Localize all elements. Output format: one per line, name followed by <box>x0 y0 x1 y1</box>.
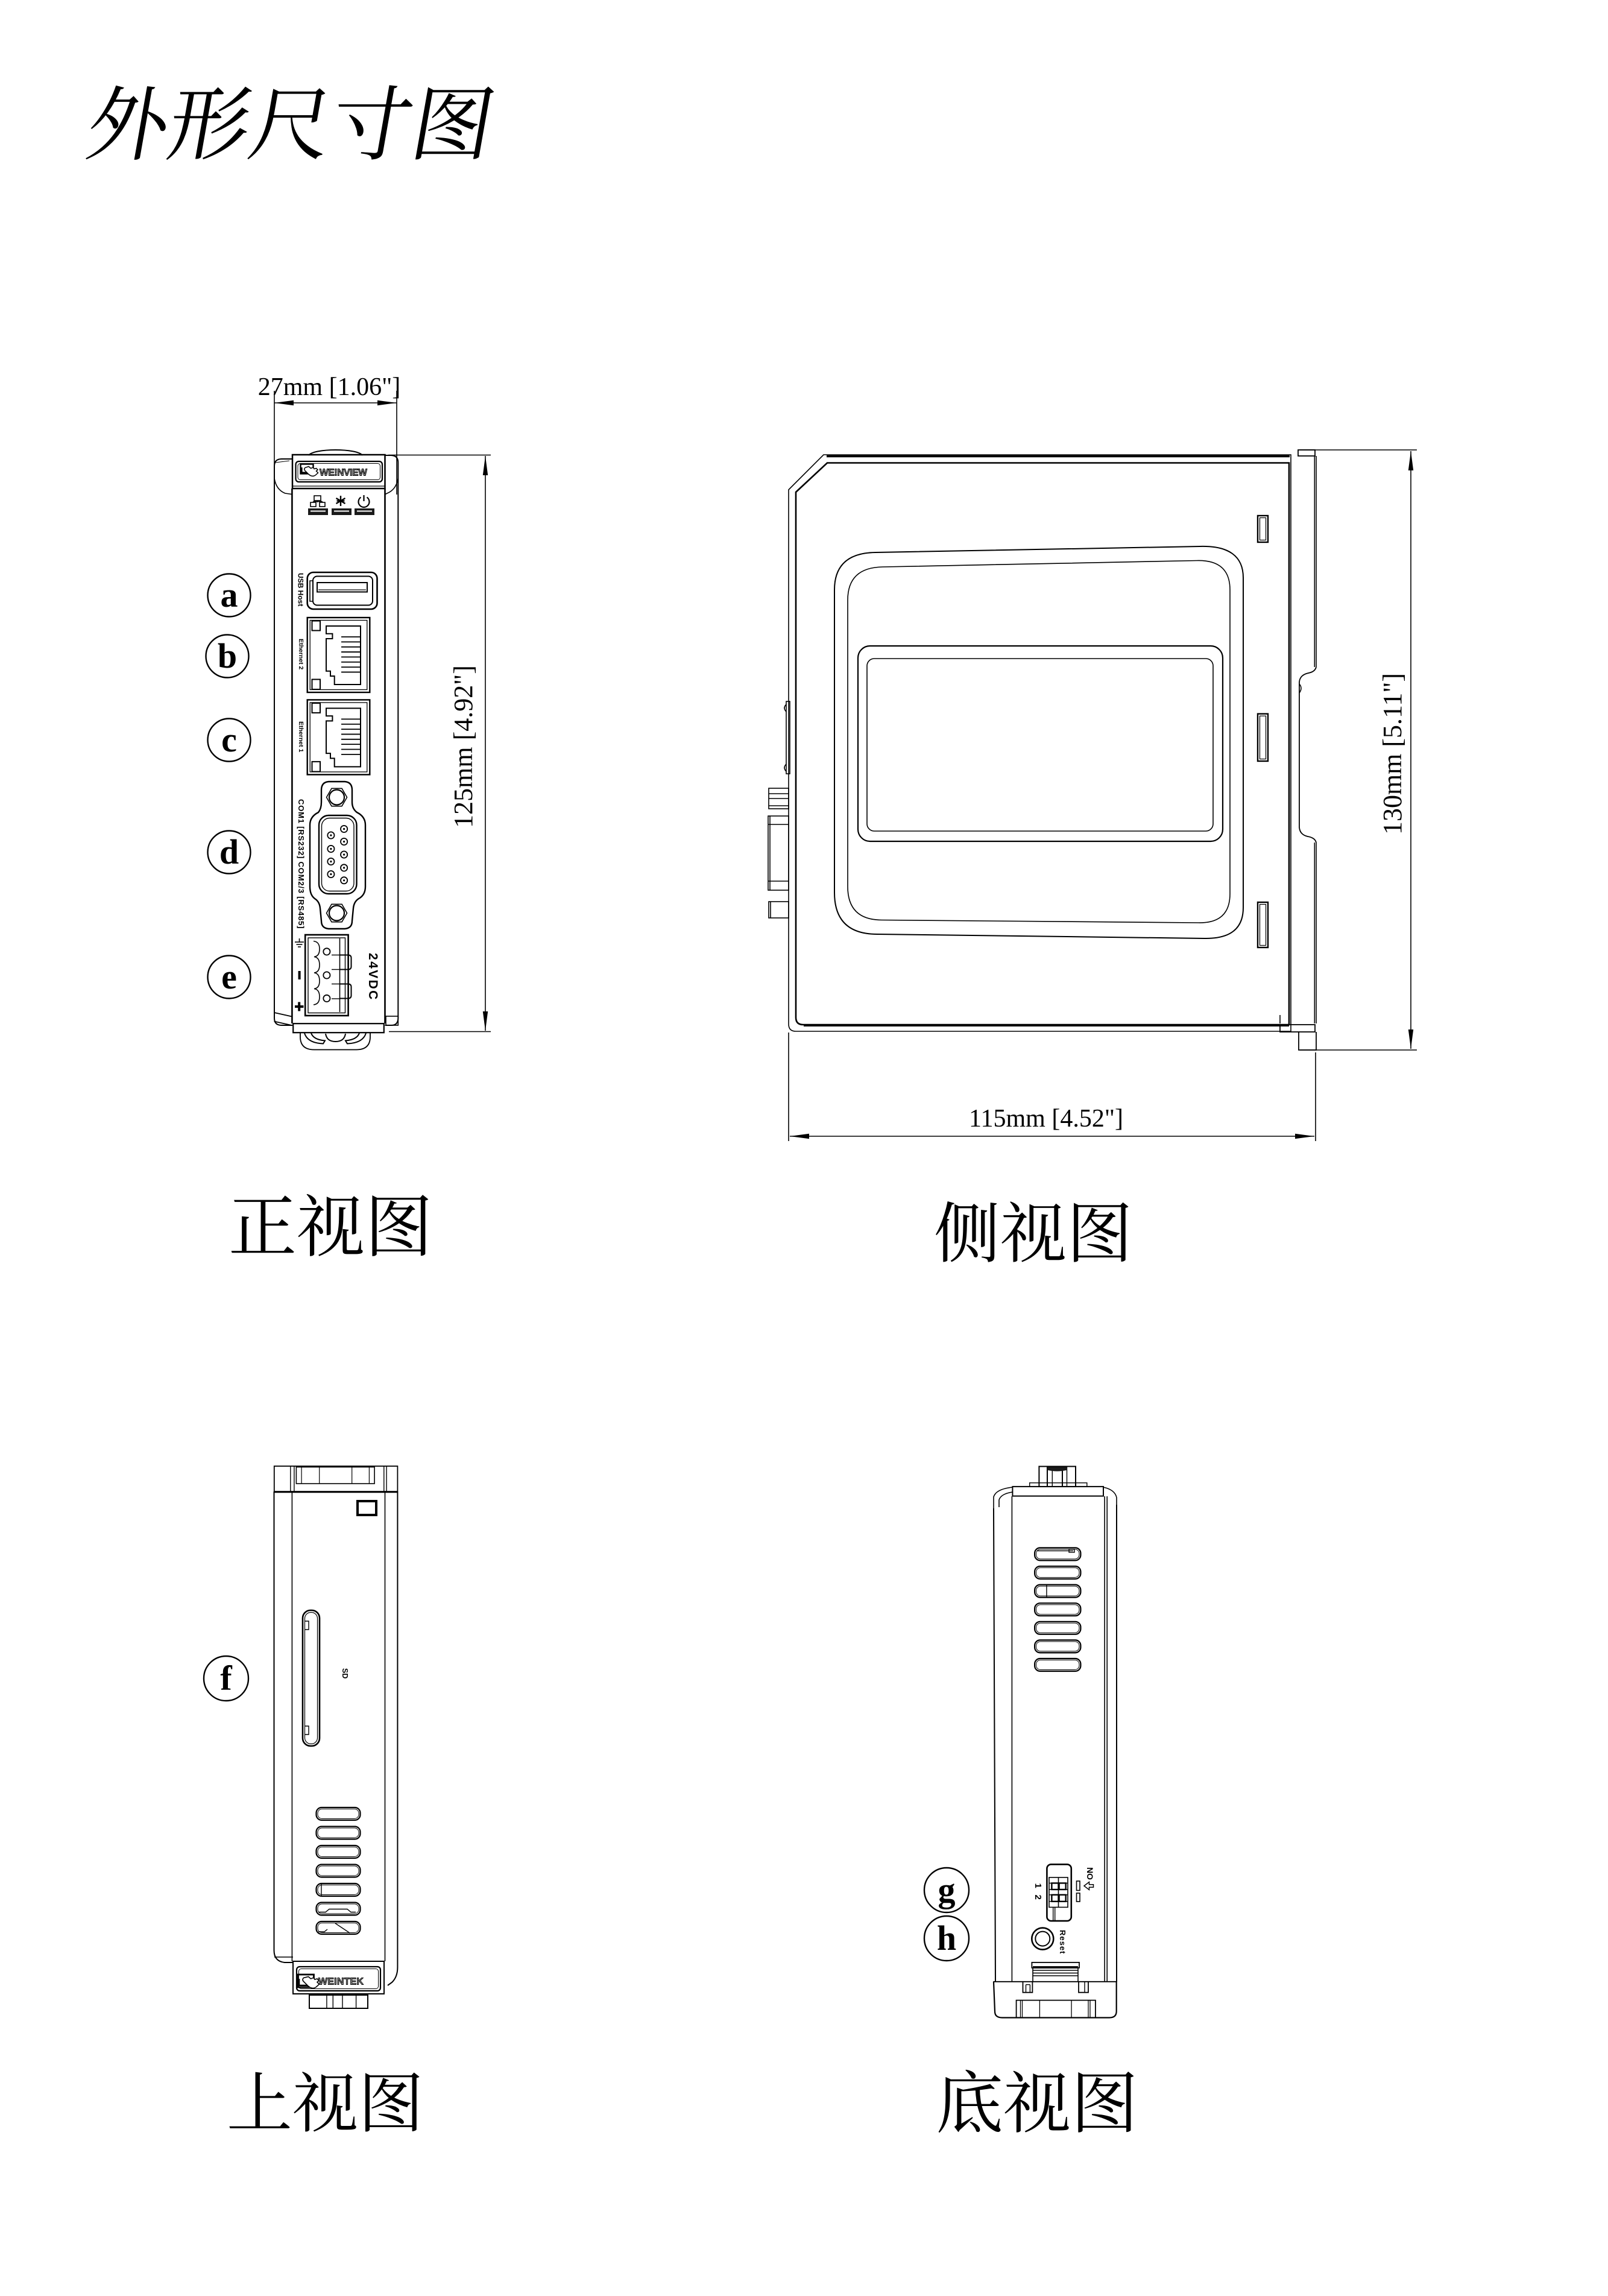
svg-text:e: e <box>221 957 237 996</box>
svg-text:130mm [5.11"]: 130mm [5.11"] <box>1378 673 1407 835</box>
svg-text:COM1 [RS232] COM2/3 [RS485]: COM1 [RS232] COM2/3 [RS485] <box>297 799 306 929</box>
svg-text:g: g <box>938 1870 956 1909</box>
svg-text:ON: ON <box>1085 1867 1094 1880</box>
svg-text:WE!NVIEW: WE!NVIEW <box>320 468 367 478</box>
svg-text:Reset: Reset <box>1058 1930 1067 1954</box>
svg-text:Ethernet 1: Ethernet 1 <box>297 721 304 753</box>
svg-text:c: c <box>221 720 237 759</box>
svg-text:1: 1 <box>1033 1883 1043 1888</box>
svg-text:2: 2 <box>1033 1895 1043 1900</box>
svg-text:d: d <box>219 832 239 871</box>
svg-text:WEINTEK: WEINTEK <box>318 1977 364 1987</box>
svg-text:115mm [4.52"]: 115mm [4.52"] <box>969 1105 1123 1133</box>
svg-text:SD: SD <box>341 1668 349 1678</box>
svg-text:f: f <box>220 1659 232 1698</box>
svg-text:USB Host: USB Host <box>297 573 305 606</box>
svg-text:27mm [1.06"]: 27mm [1.06"] <box>258 373 400 401</box>
svg-text:125mm [4.92"]: 125mm [4.92"] <box>449 665 478 828</box>
svg-text:24VDC: 24VDC <box>366 953 380 1001</box>
svg-text:b: b <box>218 636 237 675</box>
svg-text:h: h <box>937 1918 956 1958</box>
svg-text:Ethernet 2: Ethernet 2 <box>297 639 304 670</box>
svg-text:a: a <box>221 575 238 615</box>
